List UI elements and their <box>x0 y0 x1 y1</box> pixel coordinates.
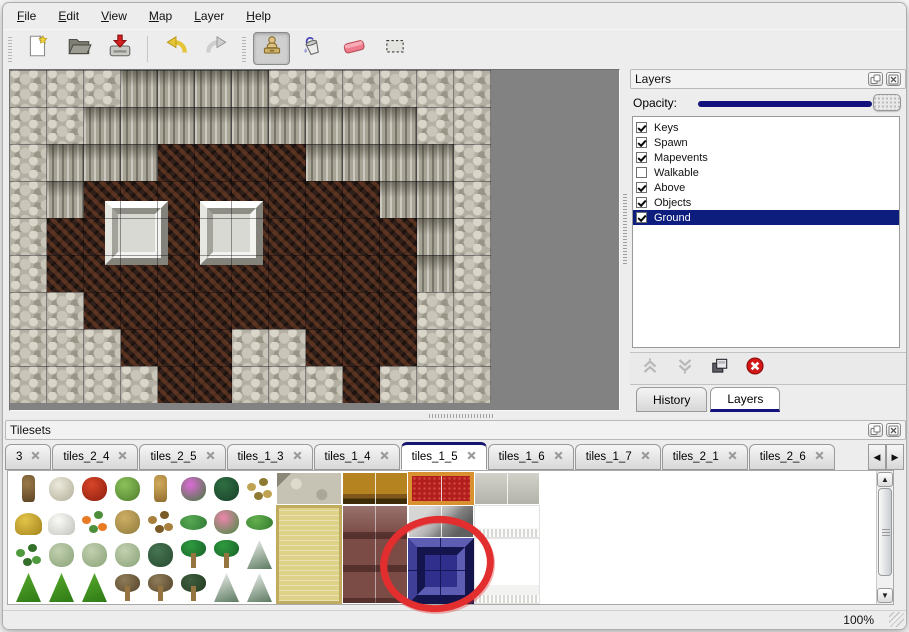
dirt-floor-tile <box>380 329 417 366</box>
redo-button[interactable] <box>198 32 235 65</box>
float-icon <box>870 74 881 85</box>
stone-ground-tile <box>417 107 454 144</box>
tileset-tab-tiles_2_4[interactable]: tiles_2_4 <box>52 444 138 470</box>
layer-visibility-checkbox[interactable] <box>636 197 647 208</box>
save-icon <box>107 33 133 64</box>
scroll-up-button[interactable]: ▲ <box>877 472 893 487</box>
stone-ground-tile <box>232 329 269 366</box>
tab-layers[interactable]: Layers <box>710 387 780 412</box>
cliff-wall-tile <box>121 107 158 144</box>
dirt-floor-tile <box>84 292 121 329</box>
tileset-tab-tiles_1_3[interactable]: tiles_1_3 <box>227 444 313 470</box>
layer-row-above[interactable]: Above <box>633 180 899 195</box>
bush-sprite <box>82 573 107 602</box>
palm-tile[interactable] <box>210 538 243 571</box>
dirt-floor-tile <box>195 329 232 366</box>
layer-name: Above <box>654 182 685 194</box>
duplicate-layer-button[interactable] <box>708 357 732 381</box>
dirt-floor-tile <box>380 292 417 329</box>
stone-ground-tile <box>454 107 491 144</box>
tree-trunk-tile[interactable] <box>12 472 45 505</box>
stone-ground-tile <box>10 255 47 292</box>
menu-map[interactable]: Map <box>147 7 174 25</box>
tab-close-icon[interactable] <box>728 451 737 463</box>
scroll-tabs-left-button[interactable]: ◀ <box>868 444 886 470</box>
sprouts-tile[interactable] <box>12 538 45 571</box>
palm-sprite <box>214 540 239 557</box>
leaves-sprite <box>148 516 157 524</box>
cliff-wall-tile <box>417 144 454 181</box>
toolbar-handle[interactable] <box>241 36 247 62</box>
tilesets-dock-title: Tilesets <box>10 423 51 437</box>
lily-pad-sprite <box>246 515 273 530</box>
stone-ground-tile <box>269 329 306 366</box>
tab-close-icon[interactable] <box>641 451 650 463</box>
tab-scroll-buttons: ◀ ▶ <box>868 444 904 470</box>
tab-history[interactable]: History <box>636 387 707 412</box>
dirt-floor-tile <box>343 218 380 255</box>
arrow-left-icon: ◀ <box>874 452 881 463</box>
stump-tile[interactable] <box>111 472 144 505</box>
tab-label: 3 <box>16 451 22 463</box>
move-layer-up-icon <box>640 356 660 381</box>
stone-ground-tile <box>84 70 121 107</box>
fill-bucket-button[interactable] <box>294 32 331 65</box>
layer-name: Mapevents <box>654 152 708 164</box>
purple-flowers-sprite <box>181 477 206 501</box>
map-canvas[interactable] <box>10 70 491 403</box>
stone-ground-tile <box>47 366 84 403</box>
menu-file[interactable]: File <box>15 7 38 25</box>
close-panel-button[interactable] <box>886 423 901 437</box>
cliff-wall-tile <box>84 107 121 144</box>
pink-flowers-sprite <box>214 510 239 534</box>
stone-ground-tile <box>454 255 491 292</box>
layer-visibility-checkbox[interactable] <box>636 212 647 223</box>
snow-pine-sprite <box>247 573 272 602</box>
menu-layer[interactable]: Layer <box>192 7 226 25</box>
dirt-floor-tile <box>306 292 343 329</box>
snow-pine-tile[interactable] <box>243 538 276 571</box>
wood-table-tile[interactable] <box>342 472 408 505</box>
cliff-wall-tile <box>343 107 380 144</box>
red-flower-sprite <box>82 477 107 501</box>
new-file-icon <box>25 33 51 64</box>
screenshot-stage: FileEditViewMapLayerHelp Layers Opacity: <box>0 0 909 632</box>
stone-ground-tile <box>454 70 491 107</box>
stone-ground-tile <box>343 70 380 107</box>
save-button[interactable] <box>101 32 138 65</box>
tab-label: tiles_1_3 <box>238 451 284 463</box>
dark-tree-sprite <box>181 574 206 592</box>
stone-ground-tile <box>10 70 47 107</box>
stone-ground-tile <box>84 329 121 366</box>
cliff-wall-tile <box>121 144 158 181</box>
orange-flowers-sprite <box>82 516 91 524</box>
pale-shrub-tile[interactable] <box>78 538 111 571</box>
bush-tile[interactable] <box>78 571 111 604</box>
eraser-icon <box>340 33 368 64</box>
toolbar <box>3 29 906 67</box>
dirt-floor-tile <box>158 292 195 329</box>
dirt-floor-tile <box>195 144 232 181</box>
menu-help[interactable]: Help <box>244 7 273 25</box>
sprouts-sprite <box>16 549 25 557</box>
dirt-floor-tile <box>232 292 269 329</box>
layer-row-spawn[interactable]: Spawn <box>633 135 899 150</box>
cliff-wall-tile <box>158 70 195 107</box>
eraser-button[interactable] <box>335 32 372 65</box>
stone-ground-tile <box>417 70 454 107</box>
cliff-wall-tile <box>306 144 343 181</box>
stone-ground-tile <box>417 329 454 366</box>
layer-visibility-checkbox[interactable] <box>636 182 647 193</box>
tab-close-icon[interactable] <box>467 451 476 463</box>
lily-pads-sprite <box>180 515 207 530</box>
stone-ground-tile <box>10 144 47 181</box>
dirt-floor-tile <box>269 292 306 329</box>
orange-flowers-tile[interactable] <box>78 505 111 538</box>
stone-ground-tile <box>454 292 491 329</box>
bush-sprite <box>16 573 41 602</box>
tilesets-dock-titlebar: Tilesets <box>5 420 906 440</box>
hay-mound-sprite <box>15 513 42 535</box>
layer-row-mapevents[interactable]: Mapevents <box>633 150 899 165</box>
leaves-tile[interactable] <box>144 505 177 538</box>
layer-row-ground[interactable]: Ground <box>633 210 899 225</box>
dirt-floor-tile <box>121 329 158 366</box>
tilesets-dock: Tilesets 3tiles_2_4tiles_2_5tiles_1_3til… <box>5 420 906 615</box>
stone-ground-tile <box>47 292 84 329</box>
tab-label: tiles_1_5 <box>412 451 458 463</box>
dark-tree-tile[interactable] <box>177 571 210 604</box>
cliff-wall-tile <box>121 70 158 107</box>
dirt-floor-tile <box>269 144 306 181</box>
dirt-floor-tile <box>380 255 417 292</box>
toolbar-separator <box>147 36 148 62</box>
stone-ground-tile <box>380 70 417 107</box>
dirt-floor-tile <box>158 144 195 181</box>
status-bar: 100% <box>3 610 906 629</box>
stone-ground-tile <box>454 366 491 403</box>
dark-shrub-sprite <box>148 543 173 567</box>
cliff-wall-tile <box>306 107 343 144</box>
stone-ground-tile <box>380 366 417 403</box>
undo-button[interactable] <box>157 32 194 65</box>
layer-name: Keys <box>654 122 678 134</box>
stone-ground-tile <box>47 107 84 144</box>
open-folder-button[interactable] <box>60 32 97 65</box>
layer-name: Walkable <box>654 167 699 179</box>
tileset-tab-tiles_1_4[interactable]: tiles_1_4 <box>314 444 400 470</box>
dead-tree-sprite <box>115 574 140 592</box>
tab-close-icon[interactable] <box>206 451 215 463</box>
stone-ground-tile <box>306 366 343 403</box>
snow-pine-tile[interactable] <box>243 571 276 604</box>
layer-actions <box>630 352 906 385</box>
layer-visibility-checkbox[interactable] <box>636 152 647 163</box>
scroll-down-button[interactable]: ▼ <box>877 588 893 603</box>
curtain-top-tile[interactable] <box>474 505 540 538</box>
fern-tile[interactable] <box>210 472 243 505</box>
stone-ground-tile <box>84 366 121 403</box>
weed-sprite <box>247 483 256 491</box>
stone-ground-tile <box>121 366 158 403</box>
dirt-floor-tile <box>343 329 380 366</box>
undo-icon <box>163 33 189 64</box>
layer-row-objects[interactable]: Objects <box>633 195 899 210</box>
close-panel-button[interactable] <box>886 72 901 86</box>
snow-mound-sprite <box>48 513 75 535</box>
layer-name: Ground <box>654 212 691 224</box>
stone-ground-tile <box>454 144 491 181</box>
pale-shrub-tile[interactable] <box>45 538 78 571</box>
dead-tree-tile[interactable] <box>111 571 144 604</box>
stone-ground-tile <box>454 329 491 366</box>
snow-pine-tile[interactable] <box>210 571 243 604</box>
stone-ground-tile <box>10 366 47 403</box>
layers-dock: Layers Opacity: KeysSpawnMapeventsWalkab… <box>630 69 906 413</box>
stone-ground-tile <box>47 329 84 366</box>
stone-ground-tile <box>269 70 306 107</box>
lily-pad-tile[interactable] <box>243 505 276 538</box>
cliff-wall-tile <box>343 144 380 181</box>
purple-flowers-tile[interactable] <box>177 472 210 505</box>
close-icon <box>888 425 899 436</box>
tileset-tab-tiles_2_6[interactable]: tiles_2_6 <box>749 444 835 470</box>
cliff-wall-tile <box>380 144 417 181</box>
stone-ground-tile <box>269 366 306 403</box>
dirt-floor-tile <box>306 329 343 366</box>
float-panel-button[interactable] <box>868 423 883 437</box>
tatami-tile[interactable] <box>276 505 342 604</box>
stone-ground-tile <box>10 329 47 366</box>
stone-ground-tile <box>10 181 47 218</box>
layer-name: Objects <box>654 197 691 209</box>
float-icon <box>870 425 881 436</box>
stone-ground-tile <box>306 70 343 107</box>
hay-mound-tile[interactable] <box>12 505 45 538</box>
tree-trunk-sprite <box>22 475 35 502</box>
cliff-wall-tile <box>84 144 121 181</box>
stamp-icon <box>259 33 285 64</box>
bush-sprite <box>49 573 74 602</box>
stone-ground-tile <box>47 70 84 107</box>
scrollbar-thumb[interactable] <box>878 488 892 576</box>
layer-visibility-checkbox[interactable] <box>636 122 647 133</box>
dirt-floor-tile <box>269 255 306 292</box>
tab-close-icon[interactable] <box>293 451 302 463</box>
redo-icon <box>204 33 230 64</box>
tileset-tab-tiles_2_1[interactable]: tiles_2_1 <box>662 444 748 470</box>
pale-shrub-sprite <box>115 543 140 567</box>
snow-mound-tile[interactable] <box>45 505 78 538</box>
palm-sprite <box>181 540 206 557</box>
tab-label: tiles_1_7 <box>586 451 632 463</box>
tab-close-icon[interactable] <box>118 451 127 463</box>
tab-label: tiles_2_4 <box>63 451 109 463</box>
dead-shrub-sprite <box>49 477 74 501</box>
cliff-wall-tile <box>417 255 454 292</box>
tileset-content[interactable] <box>12 472 858 604</box>
tab-label: tiles_2_1 <box>673 451 719 463</box>
toolbar-handle[interactable] <box>7 36 13 62</box>
snow-pine-sprite <box>214 573 239 602</box>
dirt-floor-tile <box>195 366 232 403</box>
fill-bucket-icon <box>300 33 326 64</box>
cliff-wall-tile <box>380 107 417 144</box>
stone-ground-tile <box>10 292 47 329</box>
tileset-tab-tiles_2_5[interactable]: tiles_2_5 <box>139 444 225 470</box>
layer-list: KeysSpawnMapeventsWalkableAboveObjectsGr… <box>632 116 900 348</box>
open-folder-icon <box>66 33 92 64</box>
fern-sprite <box>214 477 239 501</box>
dead-shrub-tile[interactable] <box>45 472 78 505</box>
dock-tabs: HistoryLayers <box>630 387 783 413</box>
dirt-floor-tile <box>195 292 232 329</box>
cliff-wall-tile <box>232 70 269 107</box>
tab-close-icon[interactable] <box>815 451 824 463</box>
duplicate-layer-icon <box>710 356 730 381</box>
tab-label: tiles_1_6 <box>499 451 545 463</box>
layers-dock-title: Layers <box>635 72 671 86</box>
dark-shrub-tile[interactable] <box>144 538 177 571</box>
cliff-wall-tile <box>195 107 232 144</box>
stone-floor-tile[interactable] <box>276 472 342 505</box>
cliff-wall-tile <box>232 107 269 144</box>
pale-shrub-sprite <box>82 543 107 567</box>
close-icon <box>888 74 899 85</box>
lily-pads-tile[interactable] <box>177 505 210 538</box>
tileset-tab-tiles_1_6[interactable]: tiles_1_6 <box>488 444 574 470</box>
tab-label: tiles_1_4 <box>325 451 371 463</box>
layer-visibility-checkbox[interactable] <box>636 137 647 148</box>
map-canvas-panel <box>9 69 620 411</box>
delete-layer-button[interactable] <box>743 357 767 381</box>
layer-visibility-checkbox[interactable] <box>636 167 647 178</box>
cliff-wall-tile <box>380 181 417 218</box>
dry-grass-sprite <box>115 510 140 534</box>
arrow-right-icon: ▶ <box>892 452 899 463</box>
weed-tile[interactable] <box>243 472 276 505</box>
stamp-button[interactable] <box>253 32 290 65</box>
dirt-floor-tile <box>343 292 380 329</box>
dirt-floor-tile <box>306 181 343 218</box>
dirt-floor-tile <box>306 218 343 255</box>
opacity-label: Opacity: <box>633 96 677 110</box>
tileset-scrollbar: ▲ ▼ <box>876 471 893 604</box>
stone-ground-tile <box>454 181 491 218</box>
dirt-floor-tile <box>380 218 417 255</box>
menu-edit[interactable]: Edit <box>56 7 81 25</box>
arrow-up-icon: ▲ <box>881 475 889 484</box>
tileset-tab-3[interactable]: 3 <box>5 444 51 470</box>
select-rect-icon <box>382 33 408 64</box>
stone-ground-tile <box>454 218 491 255</box>
cliff-wall-tile <box>195 70 232 107</box>
tab-close-icon[interactable] <box>31 451 40 463</box>
tileset-tabs: 3tiles_2_4tiles_2_5tiles_1_3tiles_1_4til… <box>5 442 866 470</box>
bush-tile[interactable] <box>45 571 78 604</box>
cliff-wall-tile <box>269 107 306 144</box>
tan-trunk-tile[interactable] <box>144 472 177 505</box>
dirt-floor-tile <box>47 255 84 292</box>
bush-tile[interactable] <box>12 571 45 604</box>
red-flower-tile[interactable] <box>78 472 111 505</box>
dirt-floor-tile <box>269 218 306 255</box>
silver-tile-tile[interactable] <box>474 472 540 505</box>
tileset-tab-tiles_1_7[interactable]: tiles_1_7 <box>575 444 661 470</box>
delete-layer-icon <box>745 356 765 381</box>
dirt-floor-tile <box>306 255 343 292</box>
tab-label: tiles_2_6 <box>760 451 806 463</box>
red-carpet-tile[interactable] <box>408 472 474 505</box>
pale-shrub-tile[interactable] <box>111 538 144 571</box>
stump-sprite <box>115 477 140 501</box>
tab-close-icon[interactable] <box>554 451 563 463</box>
tan-trunk-sprite <box>154 475 167 502</box>
resize-grip[interactable] <box>889 612 904 627</box>
vertical-splitter[interactable] <box>621 69 630 411</box>
dirt-floor-tile <box>47 218 84 255</box>
dirt-floor-tile <box>343 181 380 218</box>
dirt-floor-tile <box>158 366 195 403</box>
menu-bar: FileEditViewMapLayerHelp <box>3 3 906 29</box>
menu-view[interactable]: View <box>99 7 129 25</box>
scroll-tabs-right-button[interactable]: ▶ <box>886 444 904 470</box>
dirt-floor-tile <box>343 255 380 292</box>
dirt-floor-tile <box>121 292 158 329</box>
layers-dock-titlebar: Layers <box>630 69 906 89</box>
tab-label: tiles_2_5 <box>150 451 196 463</box>
dead-tree-tile[interactable] <box>144 571 177 604</box>
horizontal-splitter[interactable] <box>3 412 906 420</box>
stone-platform-tile <box>200 201 263 265</box>
palm-tile[interactable] <box>177 538 210 571</box>
stone-ground-tile <box>417 292 454 329</box>
new-file-button[interactable] <box>19 32 56 65</box>
layer-name: Spawn <box>654 137 688 149</box>
move-layer-down-icon <box>675 356 695 381</box>
dry-grass-tile[interactable] <box>111 505 144 538</box>
dirt-floor-tile <box>269 181 306 218</box>
cliff-wall-tile <box>47 144 84 181</box>
layer-row-keys[interactable]: Keys <box>633 120 899 135</box>
zoom-level: 100% <box>843 613 874 627</box>
cliff-wall-tile <box>417 218 454 255</box>
pink-flowers-tile[interactable] <box>210 505 243 538</box>
move-layer-up-button[interactable] <box>638 357 662 381</box>
opacity-slider[interactable] <box>698 101 872 107</box>
opacity-slider-handle[interactable] <box>873 94 901 111</box>
layer-row-walkable[interactable]: Walkable <box>633 165 899 180</box>
select-rect-button[interactable] <box>376 32 413 65</box>
dead-tree-sprite <box>148 574 173 592</box>
stone-ground-tile <box>417 366 454 403</box>
app-window: FileEditViewMapLayerHelp Layers Opacity: <box>2 2 907 630</box>
cliff-wall-tile <box>47 181 84 218</box>
tileset-tab-tiles_1_5[interactable]: tiles_1_5 <box>401 442 487 470</box>
dirt-floor-tile <box>232 144 269 181</box>
tab-close-icon[interactable] <box>380 451 389 463</box>
pale-shrub-sprite <box>49 543 74 567</box>
stone-ground-tile <box>10 218 47 255</box>
move-layer-down-button[interactable] <box>673 357 697 381</box>
arrow-down-icon: ▼ <box>881 591 889 600</box>
snow-pine-sprite <box>247 540 272 569</box>
float-panel-button[interactable] <box>868 72 883 86</box>
dirt-floor-tile <box>343 366 380 403</box>
